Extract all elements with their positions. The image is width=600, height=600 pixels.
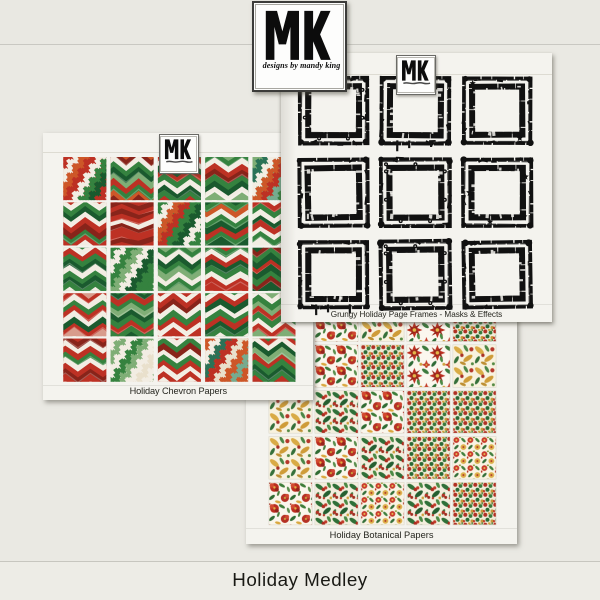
svg-text:designs by mandy king: designs by mandy king bbox=[262, 61, 340, 70]
